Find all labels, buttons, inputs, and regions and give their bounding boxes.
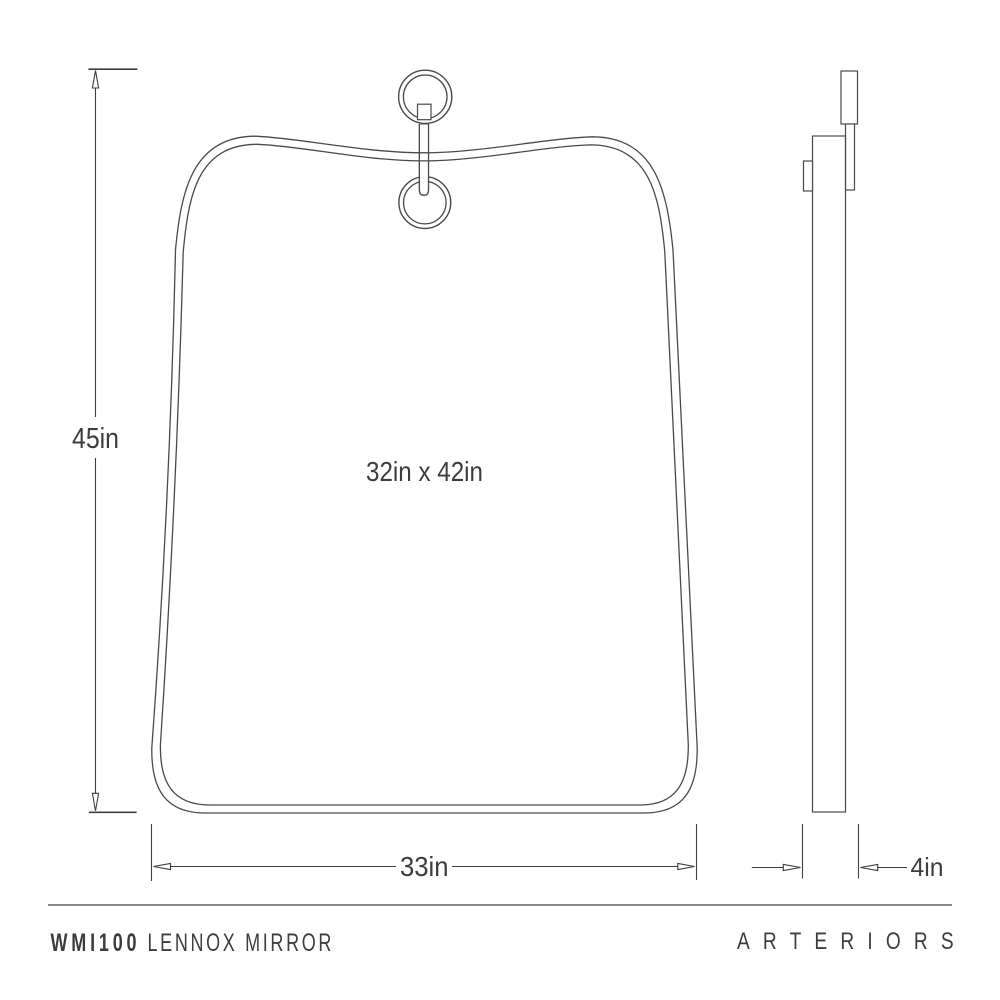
- svg-text:ARTERIORS: ARTERIORS: [737, 927, 967, 955]
- svg-text:32in x 42in: 32in x 42in: [366, 456, 483, 487]
- svg-text:4in: 4in: [911, 852, 944, 882]
- svg-text:WMI100: WMI100: [51, 928, 141, 957]
- svg-text:LENNOX MIRROR: LENNOX MIRROR: [148, 928, 335, 957]
- svg-text:45in: 45in: [72, 423, 119, 455]
- svg-text:33in: 33in: [400, 851, 449, 882]
